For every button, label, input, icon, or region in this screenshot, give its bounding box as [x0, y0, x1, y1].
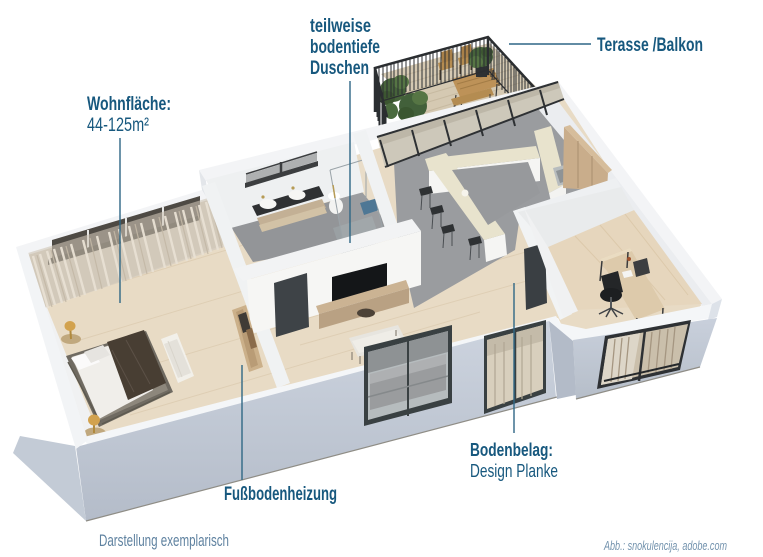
svg-text:Wohnfläche:: Wohnfläche: — [87, 94, 171, 115]
svg-text:Darstellung exemplarisch: Darstellung exemplarisch — [99, 531, 229, 550]
svg-text:bodentiefe: bodentiefe — [310, 37, 380, 58]
svg-text:Abb.: snokulencija, adobe.com: Abb.: snokulencija, adobe.com — [603, 538, 727, 553]
svg-text:Design Planke: Design Planke — [470, 461, 558, 481]
svg-text:Duschen: Duschen — [310, 58, 369, 79]
svg-text:44-125m²: 44-125m² — [87, 115, 149, 136]
svg-text:teilweise: teilweise — [310, 16, 371, 37]
svg-text:Terasse /Balkon: Terasse /Balkon — [597, 35, 703, 56]
svg-text:Fußbodenheizung: Fußbodenheizung — [224, 484, 337, 505]
svg-text:Bodenbelag:: Bodenbelag: — [470, 440, 553, 460]
